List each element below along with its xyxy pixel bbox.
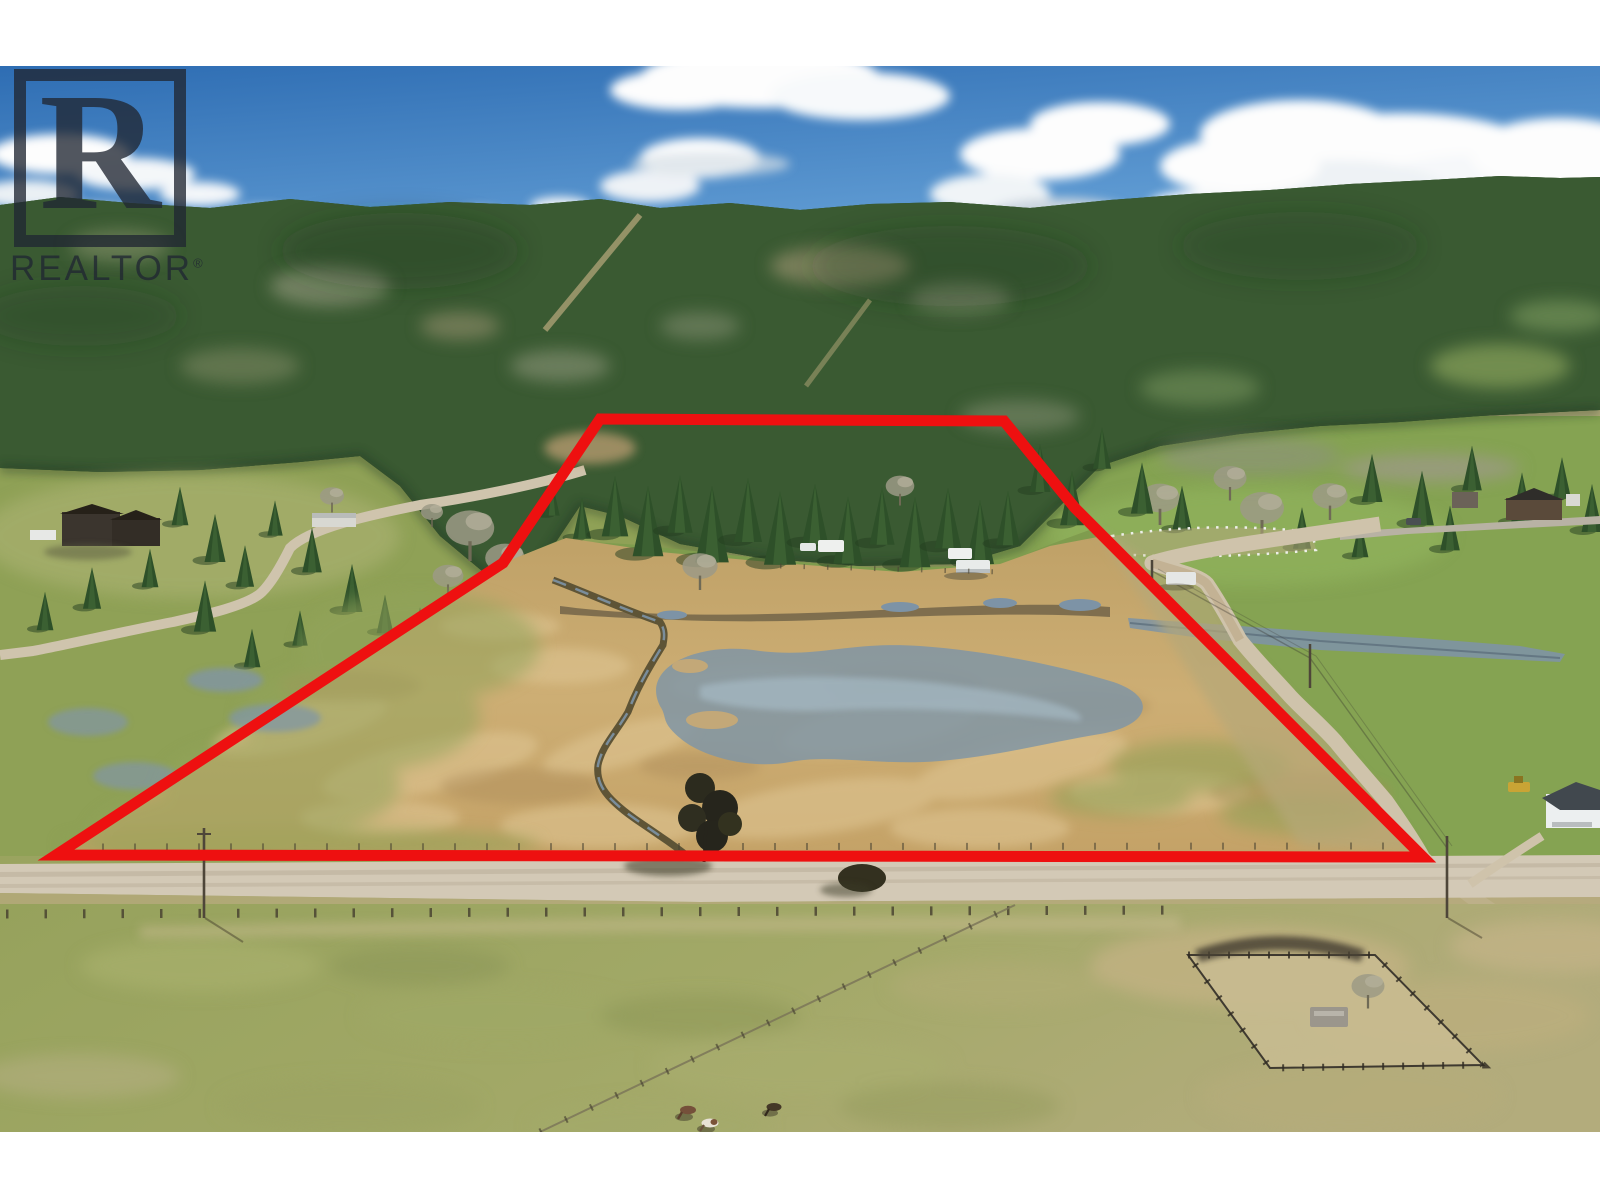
screenshot-canvas: R REALTOR® xyxy=(0,0,1600,1200)
white-shed xyxy=(1166,572,1196,585)
realtor-wordmark: REALTOR® xyxy=(10,249,206,289)
scene-painting xyxy=(0,66,1600,1132)
wetland-island xyxy=(686,711,738,729)
white-rv xyxy=(30,530,56,540)
gray-trailer-object xyxy=(1310,1007,1348,1027)
realtor-logo-letter: R xyxy=(39,68,160,236)
realtor-logo-r-icon: R xyxy=(14,69,186,247)
registered-trademark-symbol: ® xyxy=(193,255,203,270)
car-on-road xyxy=(1406,518,1421,525)
aerial-photo: R REALTOR® xyxy=(0,66,1600,1132)
